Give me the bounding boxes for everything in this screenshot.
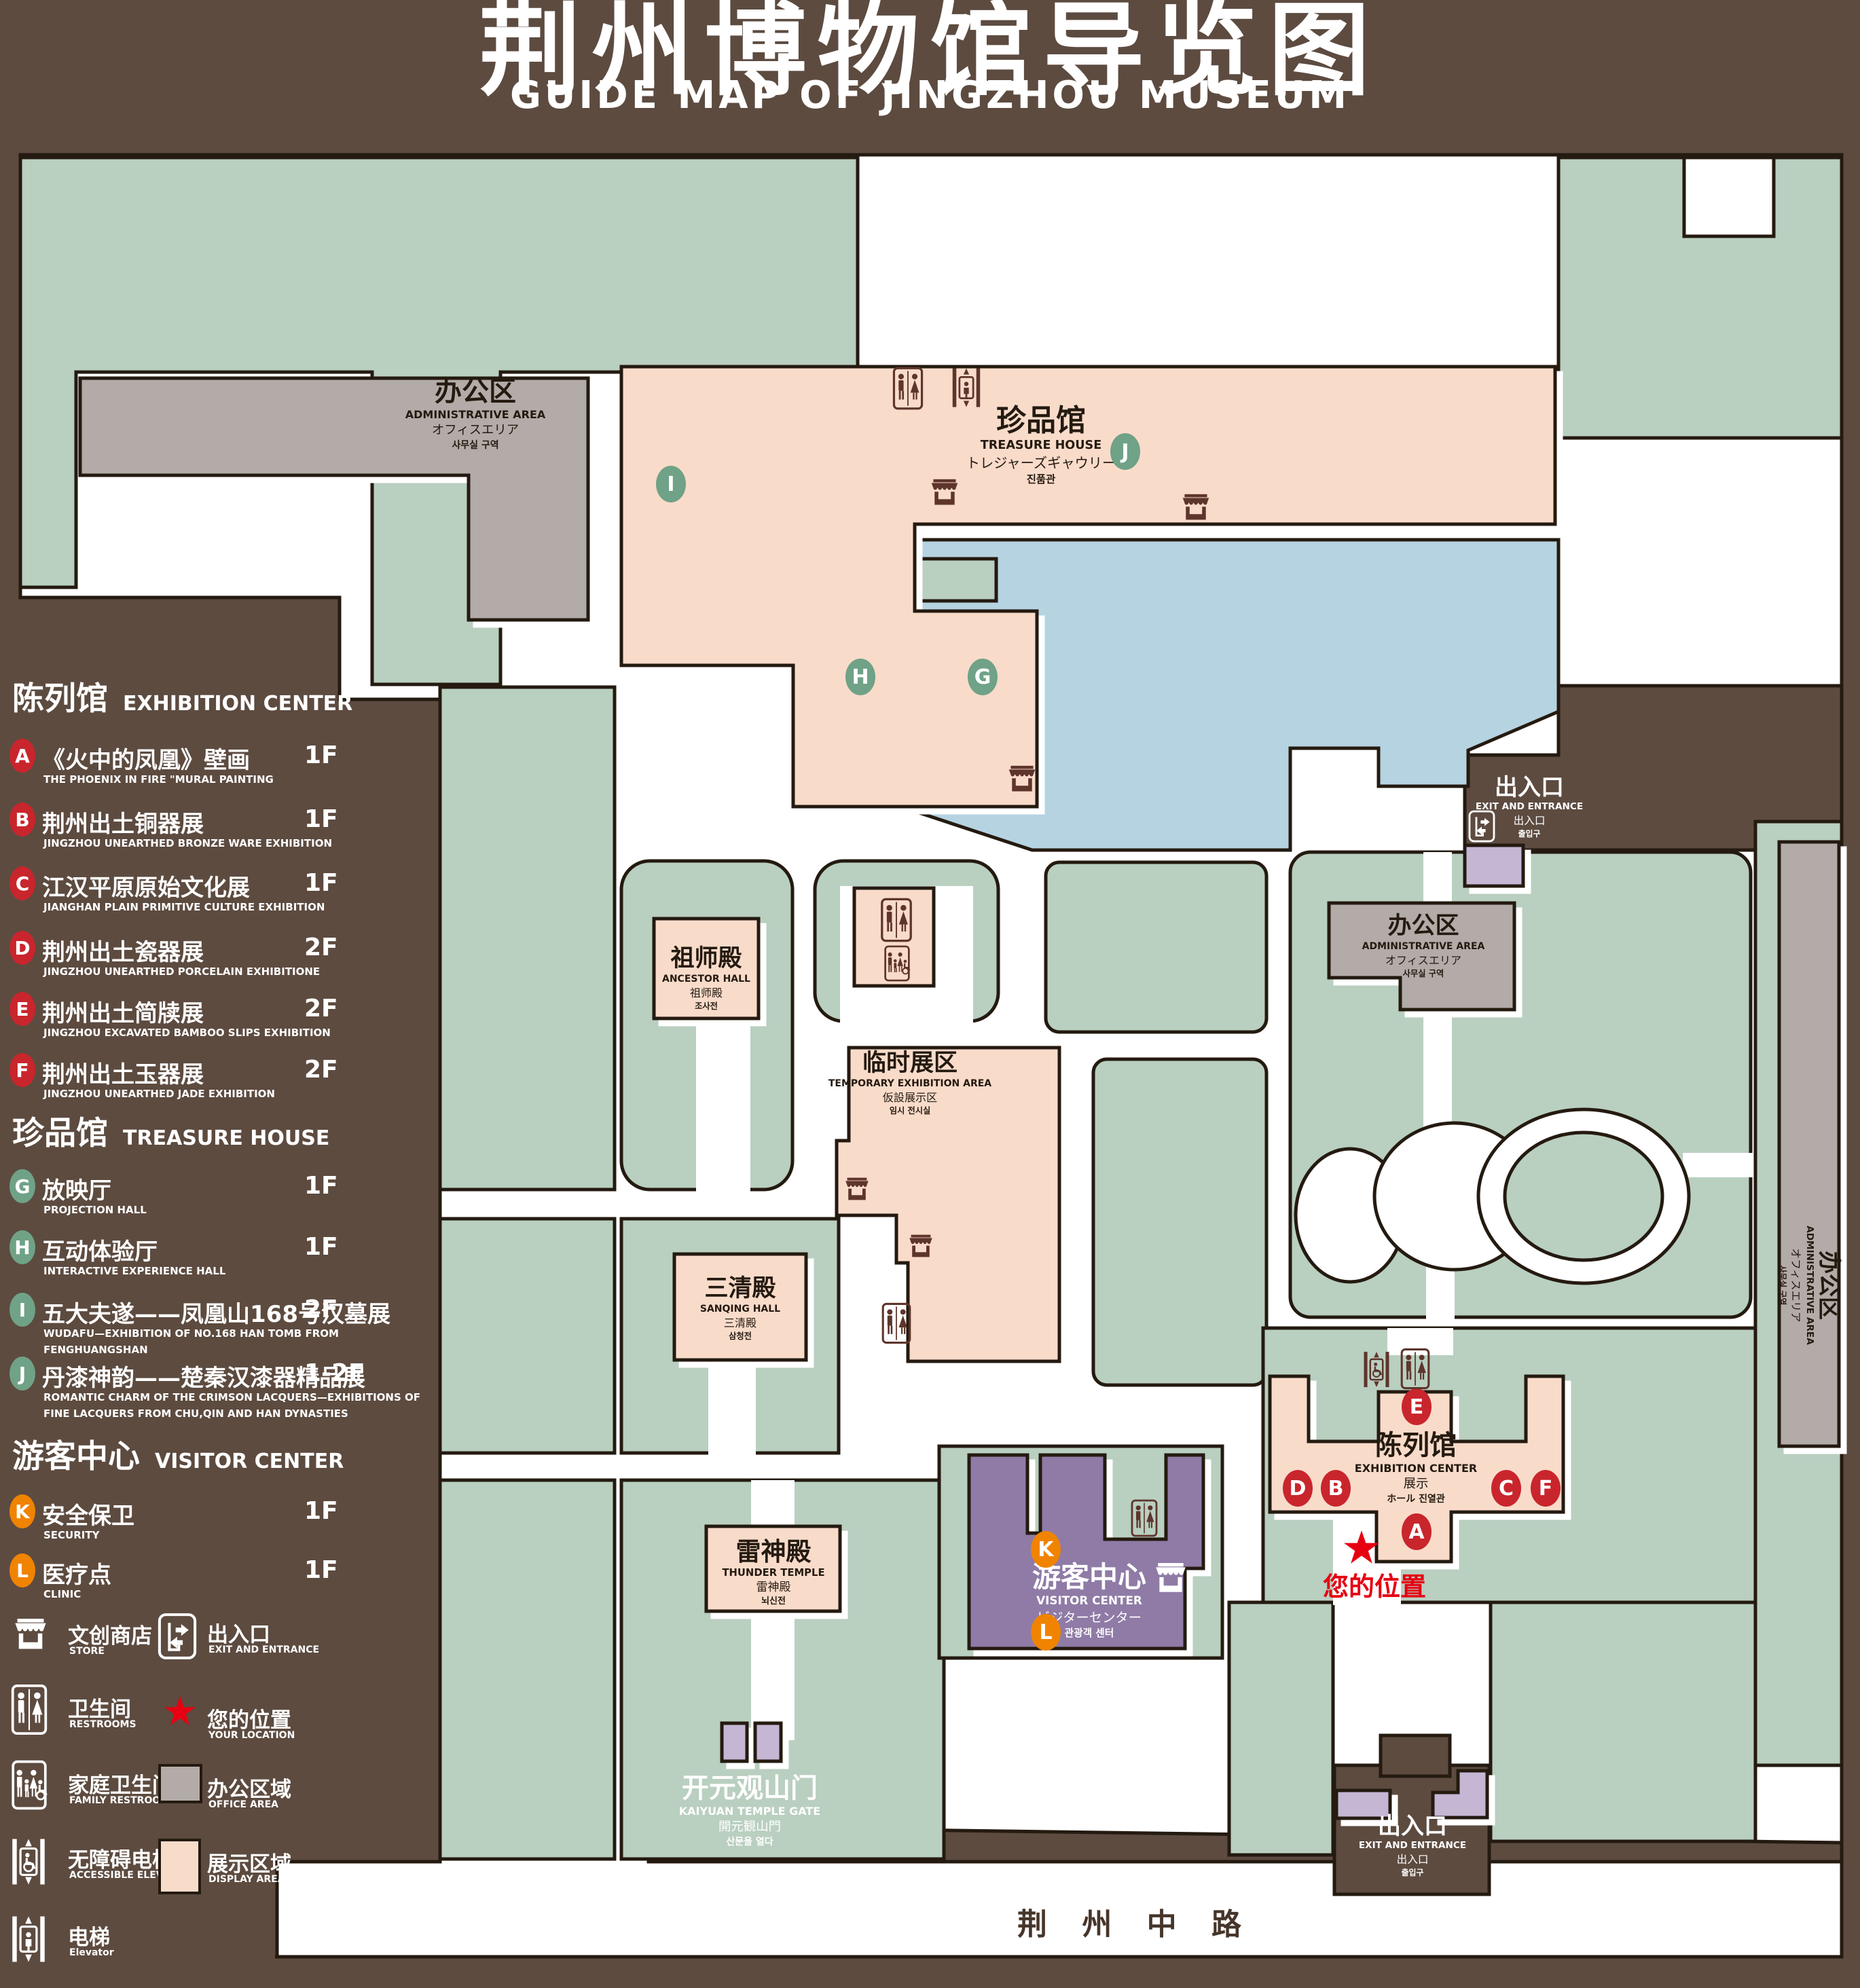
family-restroom-icon <box>11 1760 48 1810</box>
legend-symbol-label: 办公区域 <box>207 1772 291 1803</box>
legend-symbol-label: 展示区域 <box>207 1847 291 1877</box>
legend: 陈列馆EXHIBITION CENTERA《火中的凤凰》壁画THE PHOENI… <box>0 0 1860 1988</box>
legend-badge-D: D <box>10 931 35 965</box>
legend-badge-L: L <box>10 1553 35 1587</box>
restroom-icon <box>11 1684 48 1735</box>
legend-item-title: 互动体验厅 <box>42 1233 158 1266</box>
legend-section-header: 游客中心VISITOR CENTER <box>12 1430 344 1477</box>
legend-item-title: 放映厅 <box>42 1172 111 1205</box>
legend-item-title: 荆州出土玉器展 <box>42 1056 204 1089</box>
legend-item-title: 安全保卫 <box>42 1497 134 1530</box>
legend-item-floor: 1F <box>304 805 338 833</box>
legend-item-title: 荆州出土简牍展 <box>42 995 204 1028</box>
legend-badge-J: J <box>10 1357 35 1391</box>
legend-item-title: 医疗点 <box>42 1556 111 1589</box>
legend-badge-F: F <box>10 1053 35 1087</box>
display-area-swatch <box>158 1839 201 1894</box>
legend-item-title: 五大夫遂——凤凰山168号汉墓展 <box>42 1295 390 1329</box>
legend-item-floor: 1F <box>304 741 338 769</box>
legend-badge-I: I <box>10 1293 35 1327</box>
legend-section-title-cn: 珍品馆 <box>12 1107 108 1154</box>
legend-item-caption: PROJECTION HALL <box>43 1202 437 1218</box>
legend-symbol-caption: Elevator <box>69 1947 114 1958</box>
legend-symbol-label: 家庭卫生间 <box>68 1768 173 1799</box>
legend-item-floor: 1-2F <box>304 1359 365 1387</box>
legend-item-floor: 1F <box>304 1233 338 1261</box>
legend-item-floor: 2F <box>304 995 338 1023</box>
legend-symbol-caption: RESTROOMS <box>69 1719 136 1730</box>
legend-section-title-cn: 陈列馆 <box>12 672 108 719</box>
legend-symbol-caption: OFFICE AREA <box>208 1799 278 1810</box>
legend-item-floor: 1F <box>304 1556 338 1584</box>
legend-section-header: 珍品馆TREASURE HOUSE <box>12 1107 329 1154</box>
legend-symbol-label: 卫生间 <box>68 1692 131 1723</box>
legend-section-title-en: EXHIBITION CENTER <box>123 692 352 719</box>
legend-item-caption: JINGZHOU UNEARTHED JADE EXHIBITION <box>43 1086 437 1102</box>
legend-item-floor: 2F <box>304 934 338 961</box>
legend-badge-C: C <box>10 866 35 900</box>
legend-section-title-en: TREASURE HOUSE <box>123 1126 329 1154</box>
legend-item-caption: JINGZHOU EXCAVATED BAMBOO SLIPS EXHIBITI… <box>43 1025 437 1041</box>
legend-symbol-caption: EXIT AND ENTRANCE <box>208 1644 319 1655</box>
legend-item-caption: JINGZHOU UNEARTHED BRONZE WARE EXHIBITIO… <box>43 835 437 851</box>
legend-section-title-en: VISITOR CENTER <box>155 1450 344 1477</box>
legend-item-caption: CLINIC <box>43 1586 437 1602</box>
legend-item-floor: 2F <box>304 1295 338 1323</box>
legend-item-caption: WUDAFU—EXHIBITION OF NO.168 HAN TOMB FRO… <box>43 1325 437 1358</box>
legend-item-caption: JINGZHOU UNEARTHED PORCELAIN EXHIBITIONE <box>43 963 437 980</box>
legend-symbol-caption: STORE <box>69 1646 105 1657</box>
legend-item-title: 江汉平原原始文化展 <box>42 869 250 902</box>
legend-item-title: 荆州出土铜器展 <box>42 805 204 839</box>
exit-door-icon <box>158 1609 197 1663</box>
legend-item-floor: 1F <box>304 1172 338 1200</box>
legend-badge-K: K <box>10 1494 35 1528</box>
legend-symbol-label: 文创商店 <box>68 1619 152 1649</box>
legend-symbol-label: 无障碍电梯 <box>68 1843 173 1873</box>
legend-item-caption: INTERACTIVE EXPERIENCE HALL <box>43 1263 437 1279</box>
legend-symbol-caption: DISPLAY AREA <box>208 1874 285 1885</box>
legend-item-title: 荆州出土瓷器展 <box>42 934 204 967</box>
legend-item-floor: 2F <box>304 1056 338 1084</box>
legend-item-caption: ROMANTIC CHARM OF THE CRIMSON LACQUERS—E… <box>43 1389 437 1422</box>
store-icon <box>12 1610 49 1661</box>
your-location-star-icon <box>163 1695 197 1727</box>
legend-symbol-caption: YOUR LOCATION <box>208 1730 295 1741</box>
legend-badge-B: B <box>10 803 35 836</box>
legend-item-caption: SECURITY <box>43 1527 437 1543</box>
elevator-icon <box>10 1912 47 1966</box>
legend-badge-H: H <box>10 1230 35 1264</box>
office-area-swatch <box>158 1764 202 1803</box>
legend-section-header: 陈列馆EXHIBITION CENTER <box>12 672 352 719</box>
accessible-elevator-icon <box>10 1835 47 1889</box>
legend-symbol-label: 您的位置 <box>207 1703 291 1733</box>
legend-item-title: 《火中的凤凰》壁画 <box>42 741 250 775</box>
legend-section-title-cn: 游客中心 <box>12 1430 140 1477</box>
legend-item-caption: THE PHOENIX IN FIRE "MURAL PAINTING <box>43 771 437 788</box>
legend-item-floor: 1F <box>304 1497 338 1525</box>
legend-badge-A: A <box>10 739 35 773</box>
legend-badge-E: E <box>10 992 35 1026</box>
legend-badge-G: G <box>10 1169 35 1203</box>
legend-item-floor: 1F <box>304 869 338 897</box>
legend-symbol-label: 电梯 <box>68 1920 110 1951</box>
legend-symbol-label: 出入口 <box>207 1617 270 1648</box>
legend-item-caption: JIANGHAN PLAIN PRIMITIVE CULTURE EXHIBIT… <box>43 899 437 915</box>
